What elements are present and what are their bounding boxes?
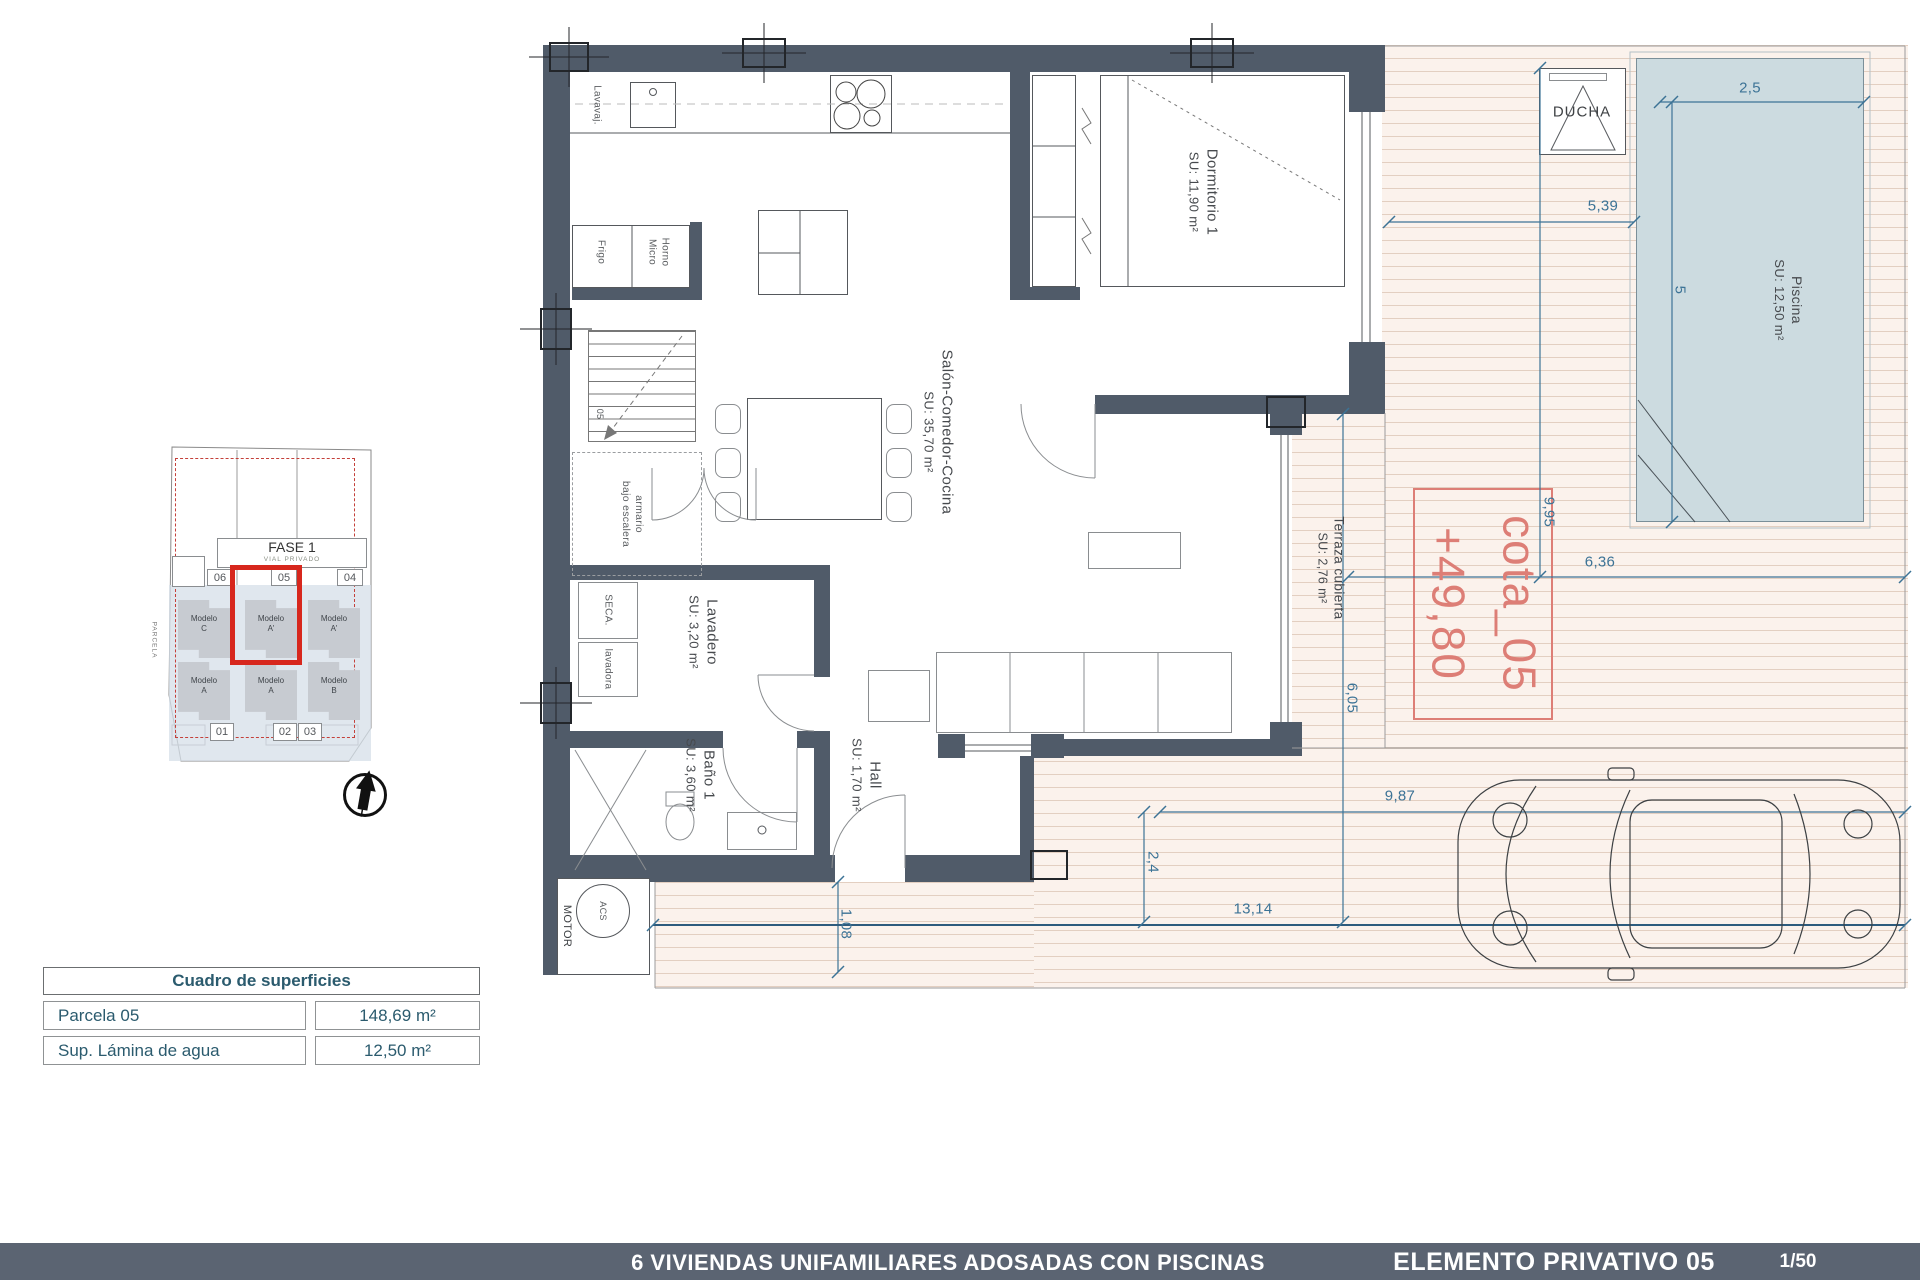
siteplan-house-03: ModeloB — [308, 662, 360, 720]
surface-row-label: Parcela 05 — [43, 1001, 306, 1030]
vial-label: VIAL PRIVADO — [218, 556, 366, 563]
surface-row-label: Sup. Lámina de agua — [43, 1036, 306, 1065]
fase-label: FASE 1 — [218, 539, 366, 556]
label-armario-line2: bajo escalera — [619, 481, 632, 547]
kitchen-counter-lines — [570, 80, 1010, 295]
room-area: SU: 2,76 m² — [1314, 516, 1330, 619]
model-name: Modelo — [191, 676, 217, 685]
siteplan-house-02: ModeloA — [245, 662, 297, 720]
model-variant: A — [245, 686, 297, 696]
siteplan-small-plot — [172, 556, 205, 587]
label-ducha: DUCHA — [1553, 104, 1611, 121]
sheet-title: ELEMENTO PRIVATIVO 05 — [1393, 1248, 1715, 1277]
pool-steps — [1551, 86, 1730, 522]
sheet-scale: 1/50 — [1780, 1251, 1817, 1273]
model-name: Modelo — [321, 614, 347, 623]
dim-drive-width: 9,87 — [1385, 788, 1415, 805]
model-name: Modelo — [321, 676, 347, 685]
model-variant: C — [178, 624, 230, 634]
title-bar: 6 VIVIENDAS UNIFAMILIARES ADOSADAS CON P… — [0, 1243, 1920, 1280]
room-name: Dormitorio 1 — [1202, 149, 1221, 236]
siteplan-house-01: ModeloA — [178, 662, 230, 720]
column-axes — [520, 23, 1254, 739]
room-name: Lavadero — [702, 595, 721, 669]
siteplan-highlight-05 — [230, 565, 302, 665]
room-area: SU: 35,70 m² — [921, 350, 937, 515]
label-armario-line1: armario — [632, 481, 645, 547]
room-name: Hall — [865, 738, 884, 812]
siteplan-house-04: ModeloA' — [308, 600, 360, 658]
label-horno-line2: Micro — [646, 238, 659, 267]
room-name: Terraza cubierta — [1329, 516, 1346, 619]
room-area: SU: 3,60 m² — [683, 738, 699, 812]
dimension-lines — [653, 68, 1905, 972]
room-name: Baño 1 — [699, 738, 718, 812]
plot-boundary — [655, 46, 1905, 988]
room-area: SU: 11,90 m² — [1186, 149, 1202, 236]
car-drawing — [1458, 768, 1900, 980]
cota-level: +49,80 — [1412, 515, 1483, 693]
dim-plot-width: 13,14 — [1233, 901, 1272, 918]
model-name: Modelo — [191, 614, 217, 623]
surface-table-header: Cuadro de superficies — [43, 967, 480, 995]
room-name: Salón-Comedor-Cocina — [937, 350, 956, 515]
dim-deck-to-pool: 5,39 — [1588, 198, 1618, 215]
model-variant: A' — [308, 624, 360, 634]
surface-row-value-text: 12,50 m² — [364, 1041, 431, 1061]
surface-row-label-text: Sup. Lámina de agua — [58, 1041, 220, 1061]
room-area: SU: 3,20 m² — [686, 595, 702, 669]
fase-label-box: FASE 1 VIAL PRIVADO — [217, 538, 367, 568]
cota-name: cota_05 — [1483, 515, 1554, 693]
surface-row-label-text: Parcela 05 — [58, 1006, 139, 1026]
project-title: 6 VIVIENDAS UNIFAMILIARES ADOSADAS CON P… — [631, 1250, 1265, 1276]
model-variant: A — [178, 686, 230, 696]
surface-row-value: 148,69 m² — [315, 1001, 480, 1030]
room-area: SU: 1,70 m² — [849, 738, 865, 812]
north-arrow — [343, 773, 387, 817]
label-horno-line1: Horno — [658, 238, 671, 267]
model-variant: B — [308, 686, 360, 696]
room-area: SU: 12,50 m² — [1771, 259, 1787, 340]
model-name: Modelo — [258, 676, 284, 685]
plot-number-02: 02 — [273, 723, 297, 741]
dim-terrace-width: 6,36 — [1585, 554, 1615, 571]
surface-row-value-text: 148,69 m² — [359, 1006, 436, 1026]
plot-number-03: 03 — [298, 723, 322, 741]
dim-pool-width: 2,5 — [1739, 80, 1761, 97]
room-name: Piscina — [1787, 259, 1805, 340]
plot-number-01: 01 — [210, 723, 234, 741]
plot-number-04: 04 — [337, 569, 363, 586]
surface-row-value: 12,50 m² — [315, 1036, 480, 1065]
surface-table-title: Cuadro de superficies — [172, 971, 351, 991]
siteplan-house-06: ModeloC — [178, 600, 230, 658]
floorplan-sheet: FASE 1 VIAL PRIVADO ModeloC ModeloA' Mod… — [0, 0, 1920, 1280]
